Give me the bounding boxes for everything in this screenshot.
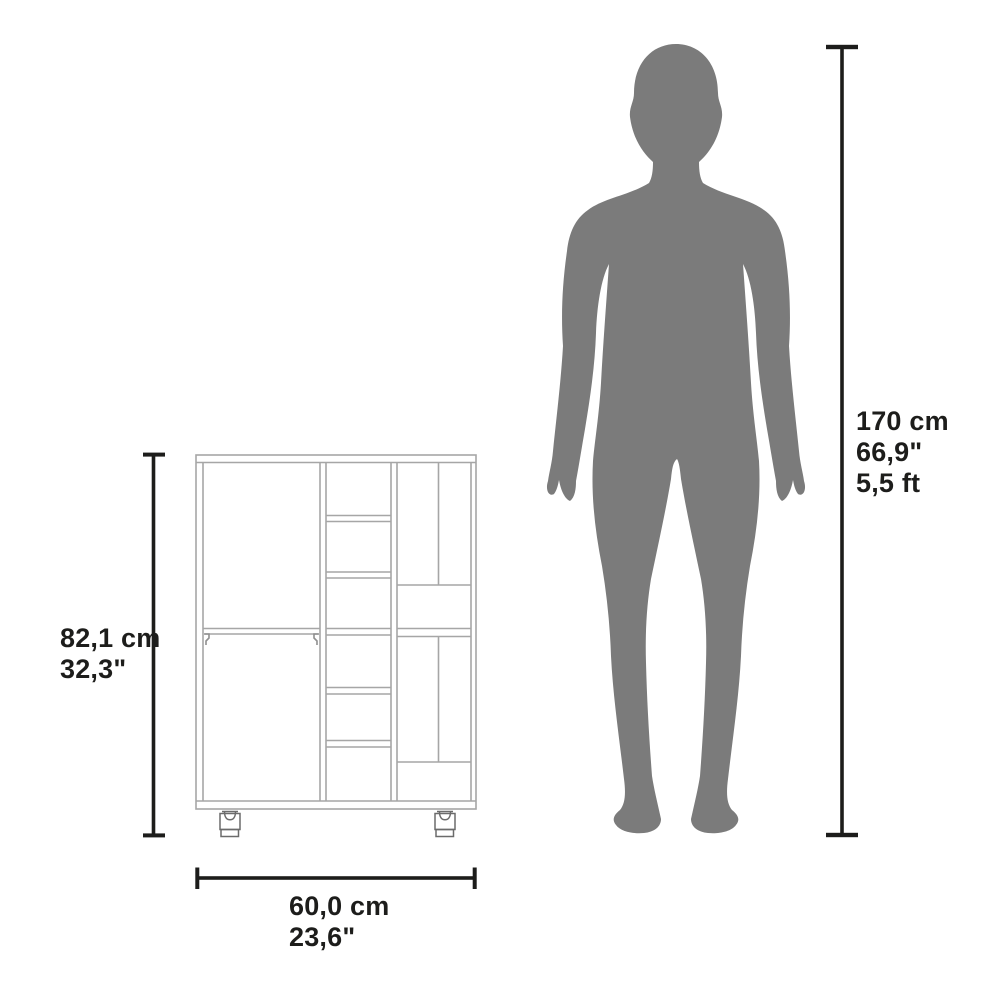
cabinet-rail [203,629,320,646]
cabinet-height-cm: 82,1 cm [60,623,160,654]
person-silhouette [547,44,805,833]
person-height-label: 170 cm 66,9" 5,5 ft [856,406,949,499]
cabinet-right-shelves [397,463,471,763]
person-height-cm: 170 cm [856,406,949,437]
cabinet-drawing [196,455,476,837]
cabinet-width-label: 60,0 cm 23,6" [289,891,389,953]
cabinet-middle-shelves [326,516,391,748]
person-height-in: 66,9" [856,437,949,468]
cabinet-width-dimension-line [195,868,476,890]
cabinet-height-label: 82,1 cm 32,3" [60,623,160,685]
person-height-dimension-line [826,45,858,837]
cabinet-width-cm: 60,0 cm [289,891,389,922]
caster-wheel-left [220,812,240,837]
cabinet-outline [196,455,476,809]
diagram-canvas [0,0,1000,1000]
product-dimension-diagram: 82,1 cm 32,3" 60,0 cm 23,6" 170 cm 66,9"… [0,0,1000,1000]
caster-wheel-right [435,812,455,837]
cabinet-height-in: 32,3" [60,654,160,685]
person-height-ft: 5,5 ft [856,468,949,499]
cabinet-width-in: 23,6" [289,922,389,953]
